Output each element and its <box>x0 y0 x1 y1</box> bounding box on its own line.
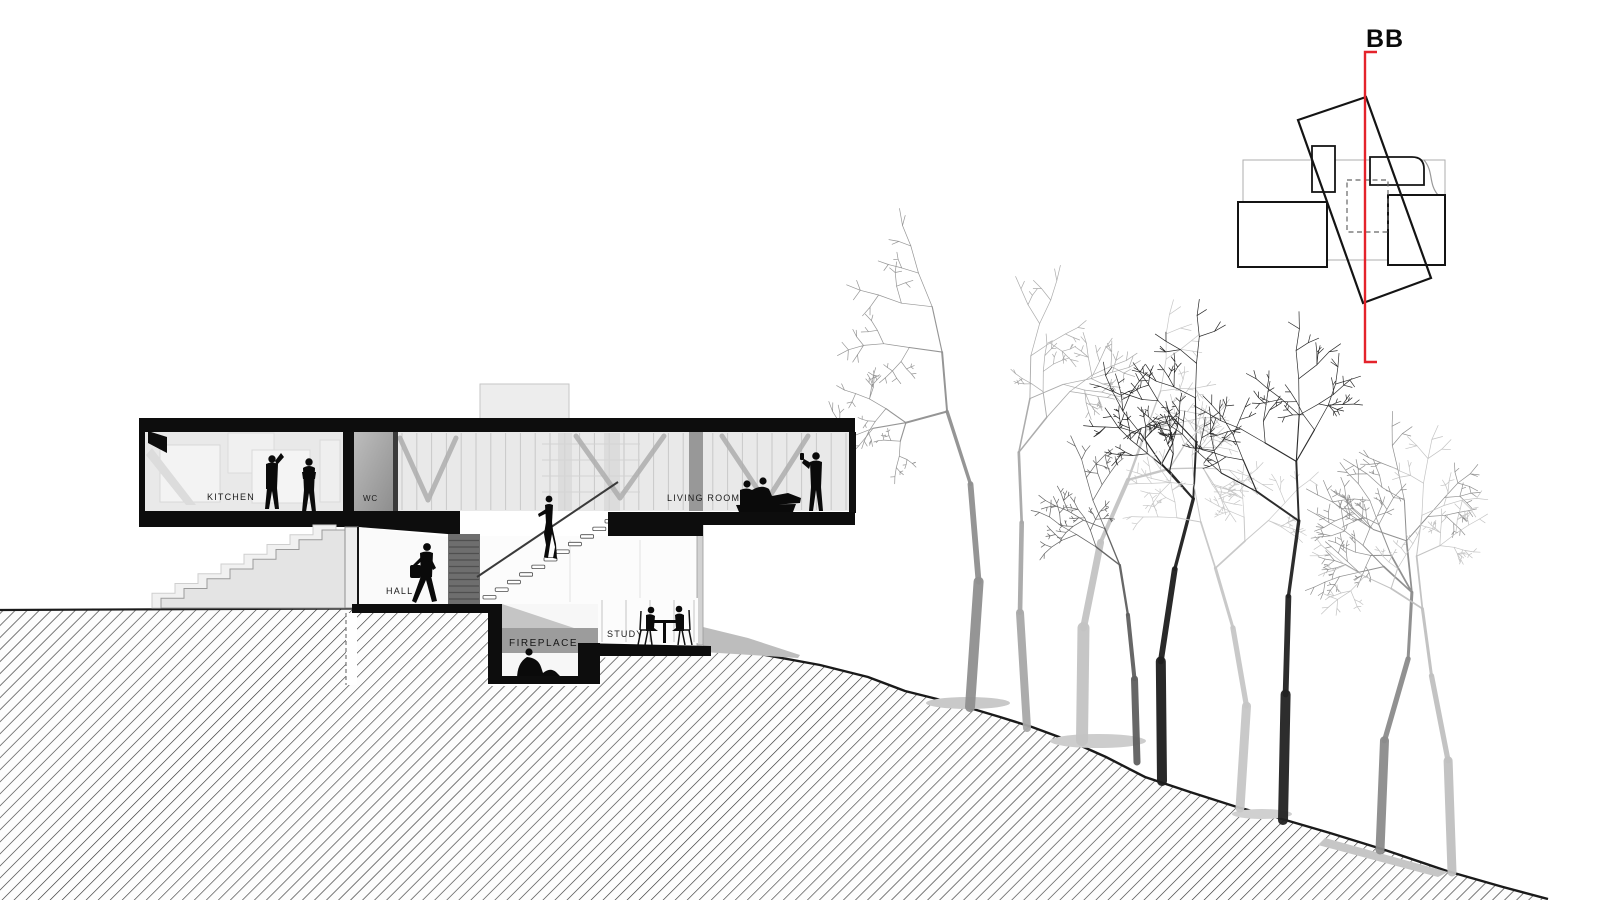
wc-label: WC <box>363 494 378 503</box>
study-floor-slab <box>578 643 711 656</box>
stair-void-interior <box>480 536 703 604</box>
kitchen-floor-slab <box>139 511 460 535</box>
stair-head-wall <box>345 527 358 608</box>
exterior-stairs-front <box>161 530 345 608</box>
fireplace-left-wall <box>488 604 502 684</box>
tree-black-tall <box>1084 299 1226 781</box>
tree-gray-right <box>1305 411 1480 850</box>
foundation-strip <box>346 613 357 685</box>
keyplan-curve-edge <box>1424 160 1438 195</box>
kitchen-wc-wall <box>343 432 354 511</box>
living-floor-slab <box>608 512 855 536</box>
left-exterior-wall <box>139 420 145 527</box>
right-exterior-wall <box>849 432 856 513</box>
tree-base-shadow <box>1050 734 1146 748</box>
living-room-label: LIVING ROOM <box>667 493 740 503</box>
section-bb-canvas: KITCHEN WC LIVING ROOM HALL <box>0 0 1600 900</box>
architectural-section-drawing: KITCHEN WC LIVING ROOM HALL <box>0 0 1600 900</box>
keyplan-room-right <box>1388 195 1445 265</box>
kitchen-label: KITCHEN <box>207 492 255 502</box>
hall-floor-slab <box>352 604 502 613</box>
fireplace-label: FIREPLACE <box>509 638 578 649</box>
hall-label: HALL <box>386 586 413 596</box>
wc-panel-edge <box>393 432 398 511</box>
roof-slab <box>139 418 855 432</box>
key-plan: BB <box>1238 25 1445 362</box>
roof-skylight <box>480 384 569 419</box>
tree-black <box>1153 312 1363 820</box>
keyplan-dashed-room <box>1347 180 1388 232</box>
exterior-stairs <box>152 525 345 608</box>
study-label: STUDY <box>607 629 644 639</box>
terrain-line-left <box>0 609 352 611</box>
louver-screen <box>448 534 480 604</box>
keyplan-room-left <box>1238 202 1327 267</box>
section-bb-label: BB <box>1366 25 1404 53</box>
